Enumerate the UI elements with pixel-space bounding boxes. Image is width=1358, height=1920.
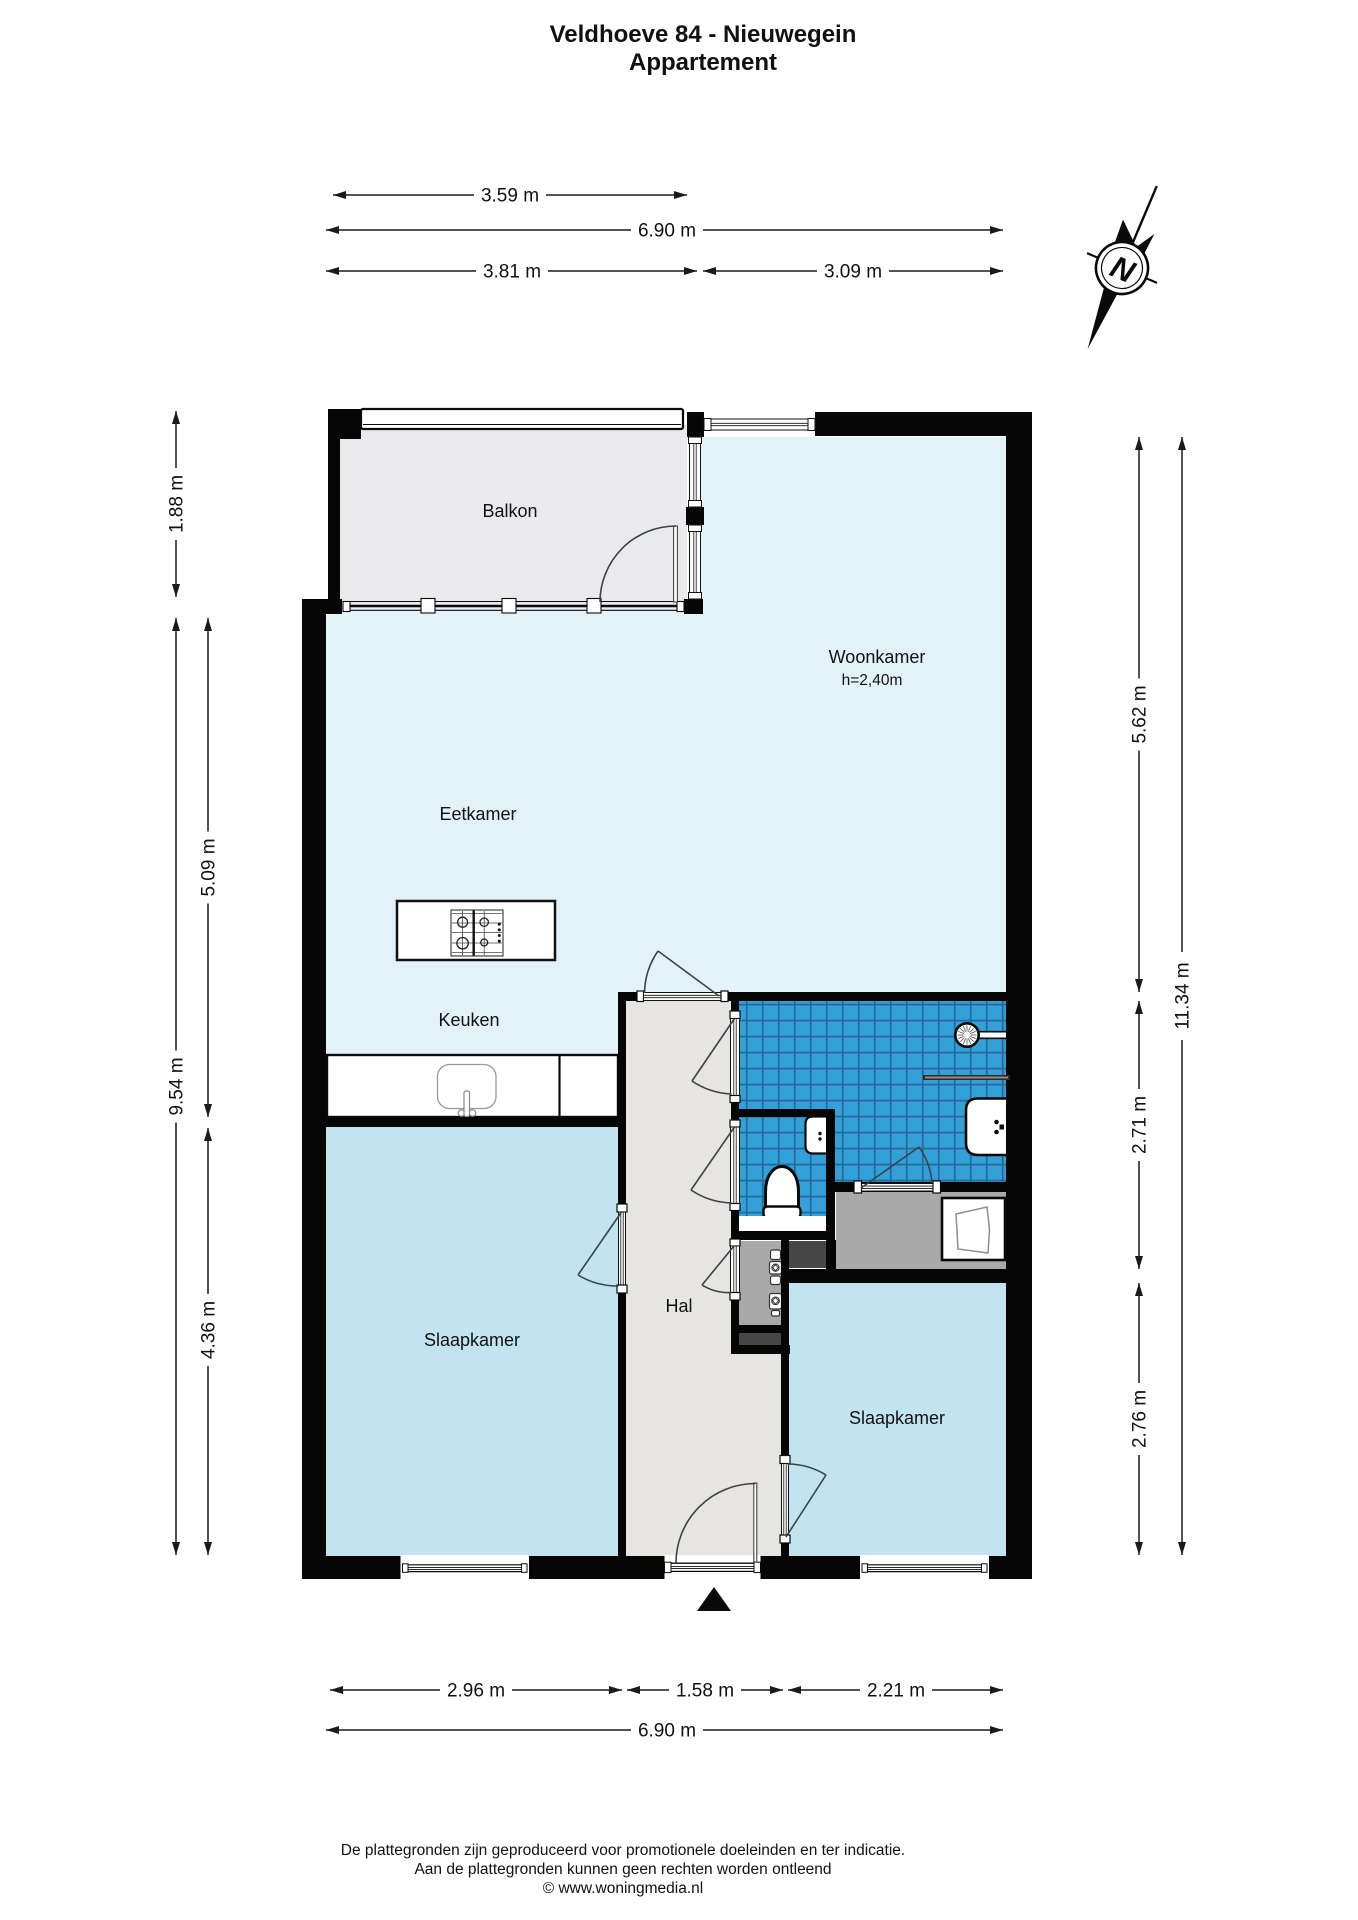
svg-text:Keuken: Keuken xyxy=(438,1010,499,1030)
svg-text:1.58 m: 1.58 m xyxy=(676,1681,734,1702)
svg-text:4.36 m: 4.36 m xyxy=(199,1301,220,1359)
svg-text:2.76 m: 2.76 m xyxy=(1130,1390,1151,1448)
svg-text:5.09 m: 5.09 m xyxy=(199,838,220,896)
svg-text:2.21 m: 2.21 m xyxy=(867,1681,925,1702)
svg-text:Slaapkamer: Slaapkamer xyxy=(424,1330,520,1350)
svg-text:Balkon: Balkon xyxy=(482,501,537,521)
svg-text:h=2,40m: h=2,40m xyxy=(842,672,903,689)
svg-text:5.62 m: 5.62 m xyxy=(1130,685,1151,743)
svg-text:6.90 m: 6.90 m xyxy=(638,221,696,242)
svg-text:Eetkamer: Eetkamer xyxy=(439,804,516,824)
svg-text:Slaapkamer: Slaapkamer xyxy=(849,1408,945,1428)
svg-text:© www.woningmedia.nl: © www.woningmedia.nl xyxy=(543,1880,703,1897)
svg-text:Veldhoeve 84 - Nieuwegein: Veldhoeve 84 - Nieuwegein xyxy=(550,21,857,48)
svg-text:3.81 m: 3.81 m xyxy=(483,262,541,283)
svg-text:Woonkamer: Woonkamer xyxy=(829,647,926,667)
svg-text:3.59 m: 3.59 m xyxy=(481,186,539,207)
svg-text:Hal: Hal xyxy=(665,1296,692,1316)
svg-text:6.90 m: 6.90 m xyxy=(638,1721,696,1742)
svg-text:Appartement: Appartement xyxy=(629,49,777,76)
svg-text:De plattegronden zijn geproduc: De plattegronden zijn geproduceerd voor … xyxy=(341,1842,905,1859)
svg-text:11.34 m: 11.34 m xyxy=(1173,962,1194,1029)
svg-text:Aan de plattegronden kunnen ge: Aan de plattegronden kunnen geen rechten… xyxy=(414,1861,831,1878)
svg-text:2.71 m: 2.71 m xyxy=(1130,1096,1151,1154)
svg-text:9.54 m: 9.54 m xyxy=(167,1057,188,1115)
svg-text:3.09 m: 3.09 m xyxy=(824,262,882,283)
svg-text:2.96 m: 2.96 m xyxy=(447,1681,505,1702)
svg-text:1.88 m: 1.88 m xyxy=(167,475,188,533)
